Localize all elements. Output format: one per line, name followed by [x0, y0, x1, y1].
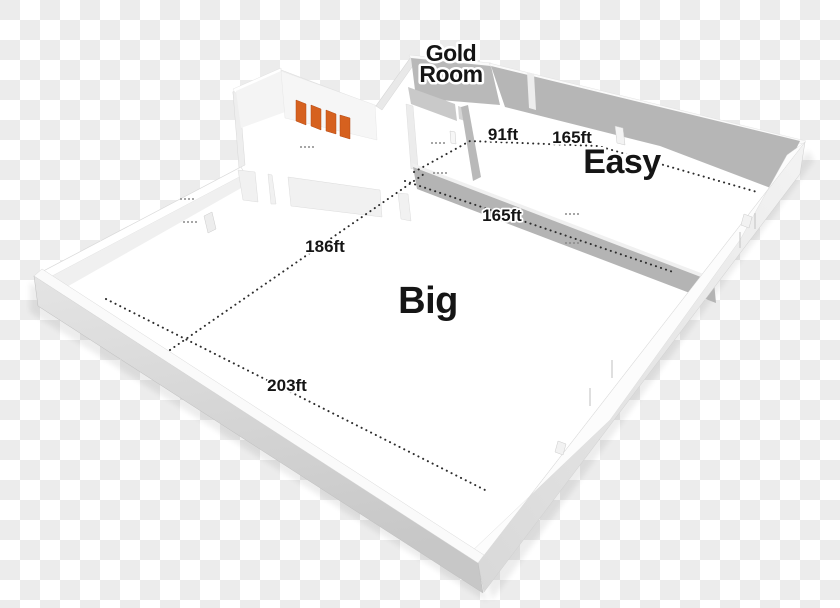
room-label-big: Big: [398, 280, 458, 322]
dimension-label-south-line-0: 203ft: [267, 376, 307, 395]
dimension-label-mid-line-0: 165ft: [482, 206, 522, 225]
dimension-label-north-line-0: 91ft: [488, 125, 519, 144]
floorplan-stage: 91ft165ft165ft186ft203ftGoldRoomEasyBig: [0, 0, 840, 608]
dimension-label-west-line-0: 186ft: [305, 237, 345, 256]
floorplan-canvas: 91ft165ft165ft186ft203ftGoldRoomEasyBig: [0, 0, 840, 608]
room-label-easy: Easy: [583, 143, 661, 181]
room-label-gold-room-line2: Room: [419, 61, 482, 87]
easy-door-jamb: [450, 131, 456, 144]
gold-door-1: [296, 100, 306, 125]
gold-door-4: [340, 115, 350, 139]
gold-door-2: [311, 105, 321, 130]
gold-door-3: [326, 110, 336, 134]
